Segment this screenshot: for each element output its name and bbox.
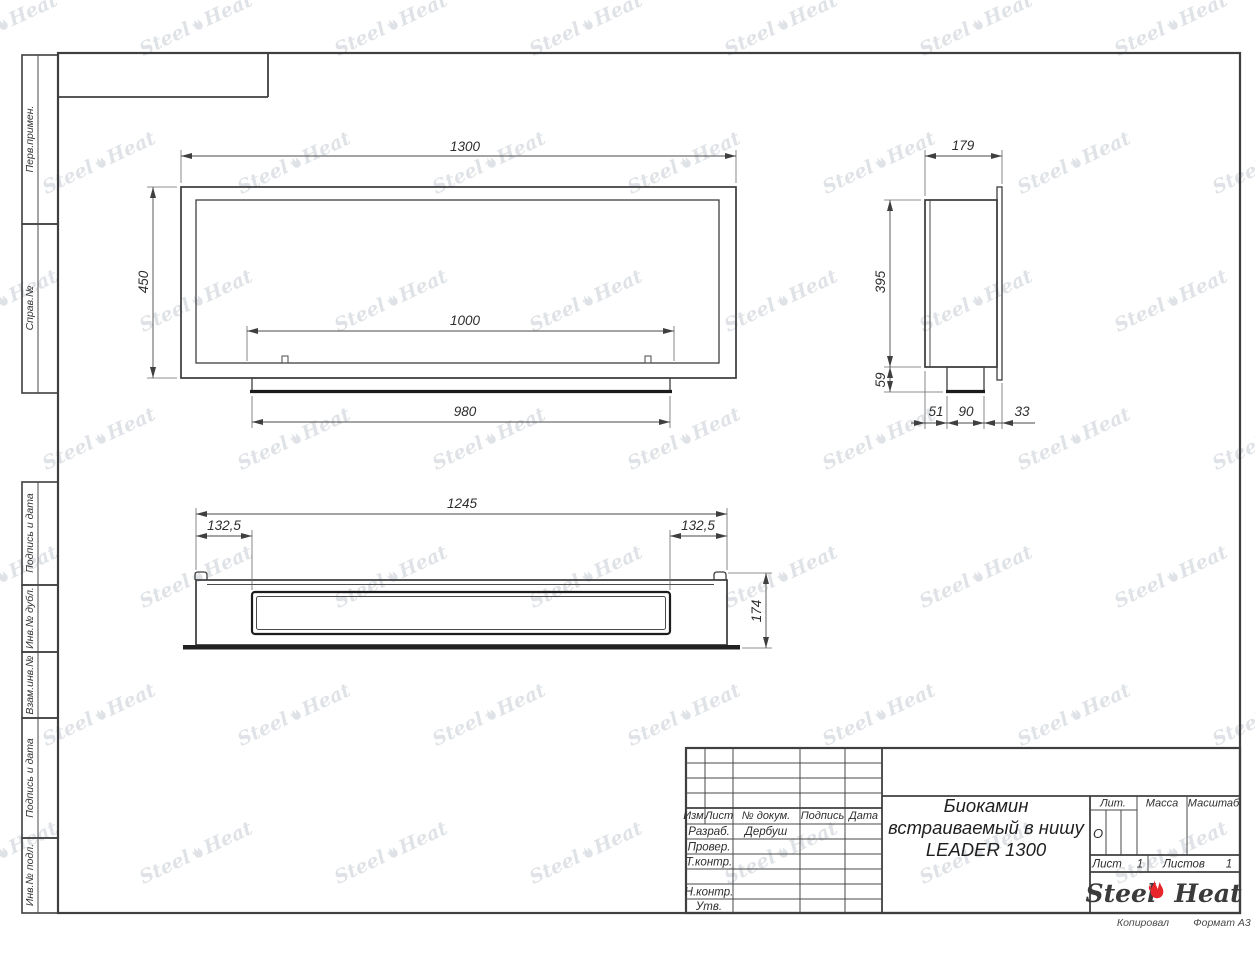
lit-value: О [1093, 826, 1103, 841]
bottom-dim-depth: 174 [749, 600, 764, 623]
side-body-outline [925, 200, 997, 367]
steelheat-logo: Steel Heat [1086, 879, 1243, 908]
side-view [925, 187, 1002, 392]
col-izm: Изм. [683, 810, 706, 822]
side-dim-seg3: 33 [1014, 404, 1030, 419]
bottom-body-outline [196, 580, 727, 645]
sidebar-label: Справ.№ [24, 286, 36, 331]
drawing-canvas: Перв.примен. Справ.№ Подпись и дата Инв.… [0, 0, 1255, 970]
masshtab-header: Масштаб [1188, 798, 1240, 810]
doc-title-line3: LEADER 1300 [926, 839, 1047, 860]
doc-title-line2: встраиваемый в нишу [888, 817, 1086, 838]
sidebar-stamps: Перв.примен. Справ.№ Подпись и дата Инв.… [22, 55, 58, 913]
side-dim-height: 395 [873, 270, 888, 293]
front-view-dimensions: 1300 450 1000 980 [136, 139, 736, 428]
front-dim-base: 980 [454, 404, 477, 419]
side-dim-seg1: 51 [928, 404, 943, 419]
col-list: Лист [704, 810, 733, 822]
sidebar-label: Подпись и дата [24, 493, 36, 573]
sheet-frame [58, 53, 1240, 913]
bottom-view [183, 572, 740, 650]
bottom-base-plate [183, 645, 740, 650]
bottom-tab-left [195, 572, 207, 580]
title-block: Изм. Лист № докум. Подпись Дата Разраб. … [683, 748, 1242, 913]
side-bottom-box [947, 367, 984, 392]
bottom-burner-slot-outer [252, 592, 670, 634]
listov-label: Листов [1162, 859, 1205, 871]
row-nkontr: Н.контр. [685, 887, 734, 899]
bottom-view-dimensions: 1245 132,5 132,5 174 [196, 496, 772, 648]
drawing-sheet: { "watermark": {"steel": "Steel", "heat"… [0, 0, 1255, 970]
sidebar-label: Подпись и дата [24, 738, 36, 818]
logo-steel-text: Steel [1086, 879, 1157, 908]
frame-border [58, 53, 1240, 913]
col-date: Дата [847, 810, 878, 822]
front-dim-opening: 1000 [450, 313, 481, 328]
listov-value: 1 [1226, 859, 1232, 871]
bottom-dim-offset-right: 132,5 [681, 518, 715, 533]
sidebar-label: Взам.инв.№ [24, 655, 36, 714]
row-razrab: Разраб. [688, 826, 730, 838]
front-outer-outline [181, 187, 736, 378]
front-clip-right [645, 356, 651, 363]
row-utv: Утв. [695, 901, 722, 913]
side-dim-seg2: 90 [958, 404, 974, 419]
format-note: Формат А3 [1193, 917, 1251, 929]
front-bottom-ledge [252, 378, 670, 391]
col-doc: № докум. [742, 810, 790, 822]
sidebar-label: Инв.№ подл. [24, 844, 36, 906]
sidebar-label: Перв.примен. [24, 106, 36, 173]
razrab-name: Дербуш [743, 826, 788, 838]
sidebar-label: Инв.№ дубл. [24, 587, 36, 649]
side-dim-bottom-height: 59 [873, 372, 888, 388]
front-view [181, 187, 736, 392]
front-inner-opening [196, 200, 719, 363]
bottom-dim-width: 1245 [447, 496, 478, 511]
col-sign: Подпись [801, 810, 845, 822]
bottom-burner-slot-inner [257, 597, 666, 630]
row-prover: Провер. [688, 842, 731, 854]
list-value: 1 [1137, 859, 1143, 871]
front-dim-width: 1300 [450, 139, 481, 154]
lit-header: Лит. [1099, 798, 1126, 810]
list-label: Лист [1091, 859, 1122, 871]
doc-title-line1: Биокамин [944, 795, 1029, 816]
massa-header: Масса [1146, 798, 1179, 810]
front-clip-left [282, 356, 288, 363]
logo-heat-text: Heat [1173, 879, 1242, 908]
front-dim-height: 450 [136, 270, 151, 293]
bottom-dim-offset-left: 132,5 [207, 518, 241, 533]
side-dim-depth: 179 [952, 138, 975, 153]
row-tkontr: Т.контр. [686, 857, 732, 869]
bottom-tab-right [714, 572, 726, 580]
kopiroval-note: Копировал [1117, 917, 1169, 929]
side-view-dimensions: 179 395 59 51 90 33 [873, 138, 1035, 429]
